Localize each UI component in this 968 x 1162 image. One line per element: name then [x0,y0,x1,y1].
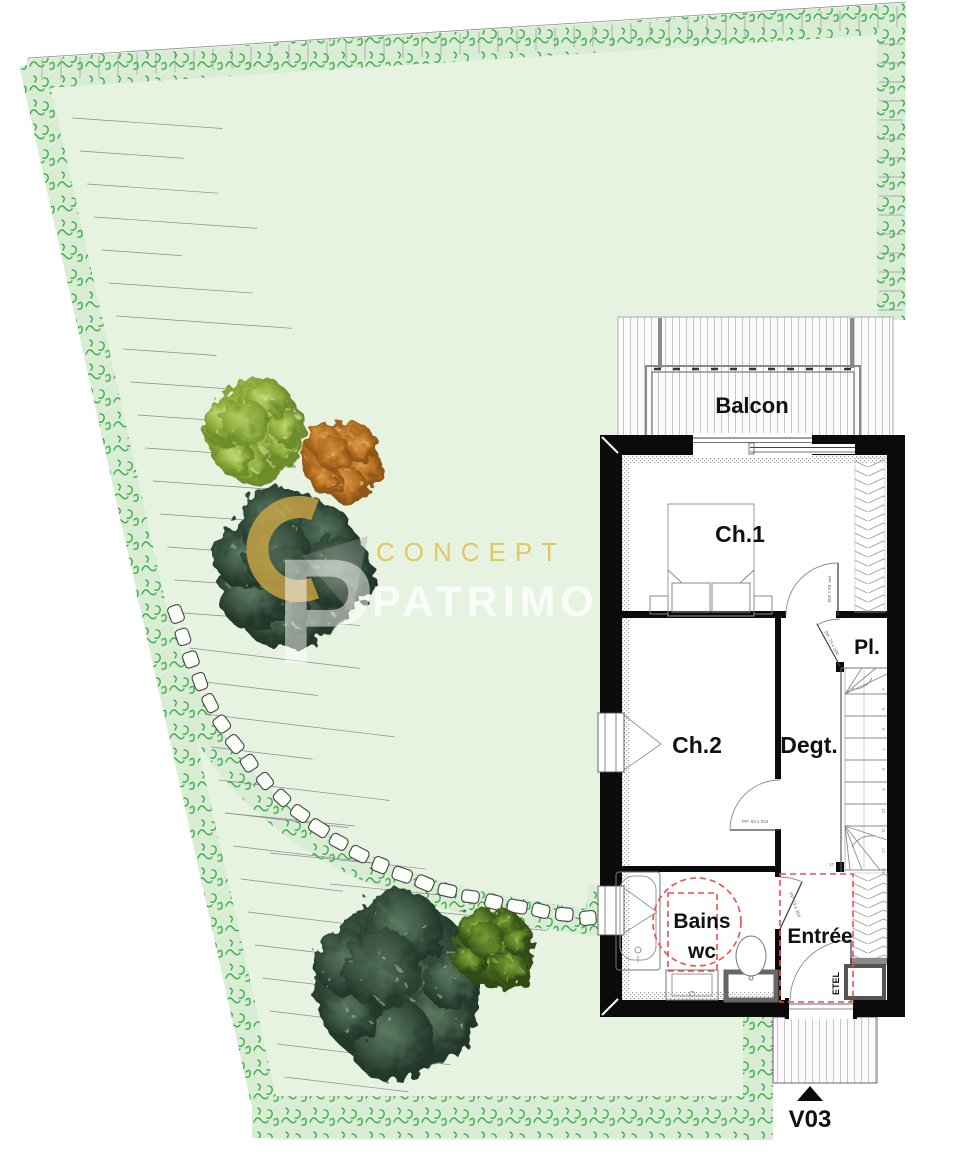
tree-speckle [387,1017,391,1021]
tree-speckle [332,473,336,477]
tree-speckle [491,913,493,915]
tree-speckle [326,472,328,474]
tree-speckle [272,399,276,403]
tree-speckle [325,454,328,457]
tree-speckle [341,471,344,474]
tree-speckle [504,918,507,921]
tree-speckle [269,426,271,428]
entree-label: Entrée [787,925,852,948]
tree-speckle [404,932,407,935]
stair-step-number: 13 [881,868,886,873]
tree-speckle [420,980,422,982]
tree-speckle [285,454,288,457]
stepping-stone [579,910,596,926]
tree-speckle [340,446,343,449]
floor-plan-page: Balcon V03 [0,0,968,1162]
tree-speckle [241,399,245,403]
stair-step-number: 10 [881,808,886,813]
tree-speckle [359,453,361,455]
tree-speckle [456,946,458,948]
tree-speckle [287,401,289,403]
tree-speckle [410,997,414,1001]
tree-speckle [402,982,406,986]
tree-speckle [342,1025,347,1030]
tree-speckle [380,954,383,957]
tree-speckle [338,429,342,433]
tree-speckle [251,407,254,410]
tree-speckle [230,543,235,548]
tree-speckle [345,437,347,439]
closet-sill [850,958,887,965]
floor-plan-canvas: Balcon V03 [0,0,968,1162]
entry-deck [773,1017,877,1083]
tree-speckle [358,470,361,473]
tree-speckle [459,949,463,953]
wc-label: wc [687,940,716,963]
ch2-door-label: PP: 83 x 204 [742,819,769,824]
tree-speckle [498,945,503,950]
tree-speckle [217,431,221,435]
tree-speckle [474,963,477,966]
tree-speckle [487,962,489,964]
tree-speckle [514,937,518,941]
tree-lobe [495,951,528,984]
entrance-arrow-icon [797,1086,823,1101]
stepping-stone [461,889,480,903]
stair-step-number: 12 [881,848,886,853]
tree-highlight [343,930,422,1009]
tree-speckle [444,966,448,970]
tree-speckle [338,481,341,484]
watermark-word2: PATRIMO [372,578,599,626]
tree-speckle [394,977,398,981]
tree-speckle [368,1019,371,1022]
ch2-label: Ch.2 [672,732,722,758]
bains-label: Bains [673,910,730,933]
tree-speckle [394,965,398,969]
tree-speckle [281,453,283,455]
tree-speckle [523,927,526,930]
tree-speckle [518,966,521,969]
railing-return-left [658,318,662,368]
building: 45678910111213 [598,433,905,1019]
tree-speckle [470,941,472,943]
tree-speckle [514,961,516,963]
tree-speckle [464,927,466,929]
etel-cabinet [846,966,884,998]
tree-speckle [351,445,355,449]
tree-speckle [443,1013,445,1015]
pl-label: Pl. [854,636,880,659]
tree-speckle [223,408,228,413]
tree-speckle [270,463,273,466]
logo-p-letter: P [275,527,375,695]
tree-speckle [504,913,508,917]
tree-speckle [243,582,246,585]
tree-speckle [490,952,494,956]
balcony: Balcon [618,317,893,441]
tree-speckle [293,411,298,416]
tree-speckle [307,459,309,461]
tree-speckle [435,986,437,988]
tree-speckle [288,407,290,409]
tree-speckle [294,448,298,452]
tree-speckle [228,586,230,588]
tree-highlight [222,399,269,446]
tree-speckle [272,437,275,440]
tree-speckle [351,489,354,492]
tree-speckle [348,432,351,435]
tree-speckle [496,962,500,966]
tree-speckle [236,606,238,608]
tree-speckle [348,1011,352,1015]
tree-speckle [504,968,506,970]
tree-speckle [507,955,511,959]
tree-speckle [360,481,364,485]
tree-speckle [458,1022,462,1026]
tree-speckle [331,480,333,482]
tree-speckle [440,996,443,999]
ch1-storage-hatch [855,458,885,612]
tree-speckle [421,926,423,928]
tree-speckle [363,442,367,446]
tree-speckle [475,923,479,927]
tree-speckle [348,958,351,961]
tree-highlight [468,922,506,960]
tree-speckle [376,997,379,1000]
ch1-door-label: PP: 83 x 204 [827,576,832,603]
tree-speckle [328,987,330,989]
tree-speckle [360,979,362,981]
tree-speckle [316,475,319,478]
stepping-stone [555,907,573,922]
tree-speckle [235,466,237,468]
tree-speckle [331,451,336,456]
tree-speckle [498,924,501,927]
tree-speckle [264,396,269,401]
tree-speckle [325,431,328,434]
tree-speckle [328,456,332,460]
tree-speckle [455,979,458,982]
tree-speckle [347,469,351,473]
tree-speckle [324,975,327,978]
tree-speckle [238,451,242,455]
ch1-label: Ch.1 [715,521,765,547]
tree-speckle [269,415,273,419]
tree-speckle [362,464,364,466]
watermark-word1: CONCEPT [376,537,566,567]
tree-speckle [242,548,245,551]
tree-speckle [376,1020,380,1024]
tree-speckle [262,450,266,454]
entry-porch: V03 [773,1017,877,1133]
stair-step-number: 11 [881,828,886,833]
tree-speckle [253,470,258,475]
tree-speckle [393,922,395,924]
entrance-code-label: V03 [789,1106,832,1133]
entree-closet-hatch [853,873,887,958]
tree-speckle [486,919,488,921]
tree-speckle [229,427,232,430]
tree-speckle [282,435,287,440]
tree-lobe [503,925,534,956]
etel-label: ETEL [831,971,841,995]
tree-speckle [514,946,518,950]
tree-speckle [379,1056,381,1058]
railing-return-right [850,318,854,368]
balcony-label: Balcon [715,393,788,418]
stair-last-step-label: 17 [829,862,835,867]
tree-speckle [507,977,509,979]
tree-speckle [496,971,498,973]
tree-speckle [375,913,377,915]
tree-speckle [504,944,508,948]
tree-speckle [275,440,278,443]
degt-label: Degt. [780,732,838,758]
tree-speckle [271,458,274,461]
tree-speckle [503,972,506,975]
